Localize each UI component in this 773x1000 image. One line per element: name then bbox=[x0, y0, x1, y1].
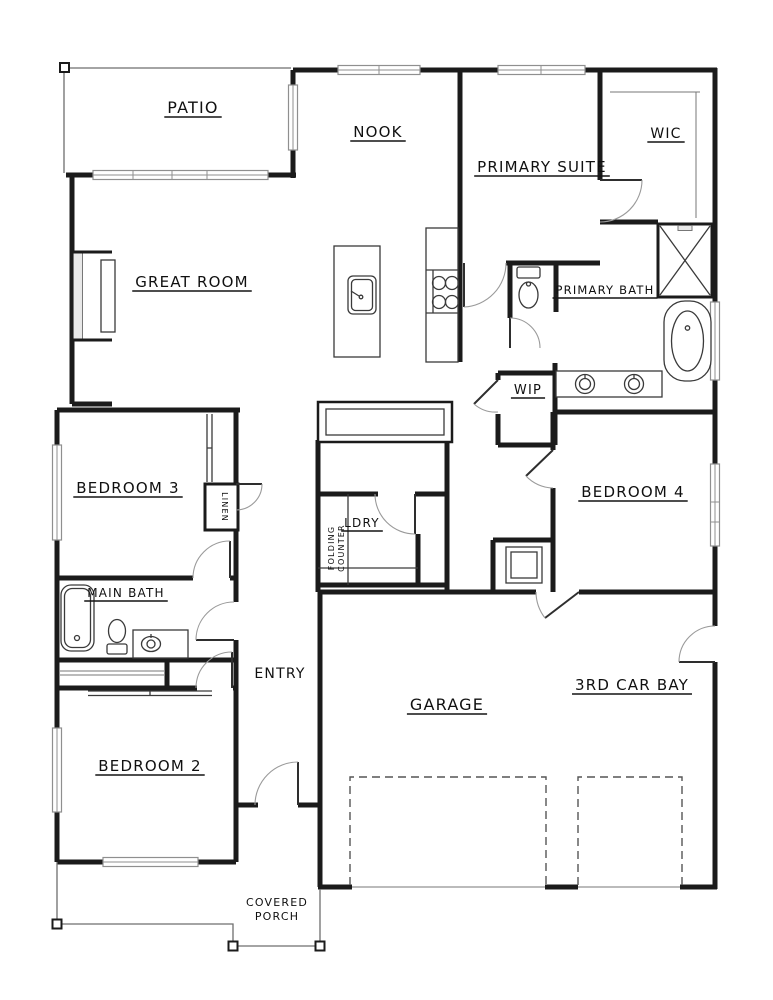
door-bedroom2 bbox=[196, 652, 232, 688]
room-label-bedroom2: BEDROOM 2 bbox=[98, 757, 201, 775]
bathtub-icon bbox=[664, 301, 711, 381]
patio-post-icon bbox=[60, 63, 69, 72]
door-garage-to-house bbox=[536, 592, 579, 618]
windows bbox=[53, 66, 720, 867]
door-main-bath bbox=[196, 602, 234, 640]
patio-outline bbox=[60, 63, 291, 173]
wic-shelves bbox=[610, 92, 700, 218]
room-label-wic: WIC bbox=[650, 126, 681, 142]
room-label-covered-porch-line2: PORCH bbox=[255, 910, 299, 923]
room-label-great-room: GREAT ROOM bbox=[135, 273, 249, 291]
room-label-patio: PATIO bbox=[167, 98, 218, 117]
door-laundry bbox=[375, 494, 415, 534]
garage-door-dashed-bay12 bbox=[350, 777, 546, 885]
room-label-bedroom3: BEDROOM 3 bbox=[76, 479, 179, 497]
room-label-primary-suite: PRIMARY SUITE bbox=[477, 158, 607, 176]
room-labels: PATIO NOOK PRIMARY SUITE WIC GREAT ROOM … bbox=[73, 98, 692, 923]
porch-post-icon bbox=[229, 942, 238, 951]
garage-door-openings bbox=[350, 777, 682, 887]
fireplace-icon bbox=[73, 252, 115, 340]
room-label-primary-bath: PRIMARY BATH bbox=[556, 283, 655, 297]
fixtures bbox=[60, 92, 712, 696]
bedroom2-closet-slider bbox=[88, 691, 212, 696]
double-vanity-icon bbox=[556, 371, 662, 397]
shower-icon bbox=[658, 224, 712, 297]
water-heater-icon bbox=[506, 547, 542, 583]
room-label-entry: ENTRY bbox=[254, 666, 305, 682]
room-label-laundry: LDRY bbox=[344, 516, 380, 530]
toilet-icon bbox=[107, 620, 127, 655]
room-label-main-bath: MAIN BATH bbox=[87, 586, 165, 600]
door-linen bbox=[236, 484, 262, 510]
garage-door-dashed-bay3 bbox=[578, 777, 682, 885]
bedroom3-closet-slider bbox=[207, 414, 212, 482]
range-icon bbox=[426, 228, 459, 362]
room-label-nook: NOOK bbox=[353, 123, 402, 141]
room-label-garage: GARAGE bbox=[410, 695, 484, 714]
door-bedroom3 bbox=[193, 541, 230, 578]
vanity-sink-icon bbox=[133, 630, 188, 658]
door-bedroom4 bbox=[526, 450, 553, 488]
door-wic bbox=[600, 180, 642, 222]
door-wip-pantry bbox=[474, 380, 498, 412]
room-label-3rd-car-bay: 3RD CAR BAY bbox=[575, 676, 689, 694]
door-front-entry bbox=[255, 762, 298, 805]
room-label-folding-counter-line1: FOLDING bbox=[327, 526, 336, 570]
door-water-closet bbox=[510, 318, 540, 348]
floor-plan-page: PATIO NOOK PRIMARY SUITE WIC GREAT ROOM … bbox=[0, 0, 773, 1000]
door-garage-side bbox=[679, 626, 715, 662]
toilet-icon bbox=[517, 267, 540, 308]
room-label-wip: WIP bbox=[514, 383, 542, 398]
room-label-covered-porch-line1: COVERED bbox=[246, 896, 308, 909]
hall-builtin-cabinet bbox=[318, 402, 452, 442]
porch-post-icon bbox=[316, 942, 325, 951]
kitchen-island bbox=[334, 246, 380, 357]
coat-closet-rod bbox=[60, 671, 164, 675]
floor-plan-canvas: PATIO NOOK PRIMARY SUITE WIC GREAT ROOM … bbox=[0, 0, 773, 1000]
room-label-linen: LINEN bbox=[220, 492, 229, 522]
room-label-bedroom4: BEDROOM 4 bbox=[581, 483, 684, 501]
door-primary-suite bbox=[464, 263, 506, 307]
porch-post-icon bbox=[53, 920, 62, 929]
